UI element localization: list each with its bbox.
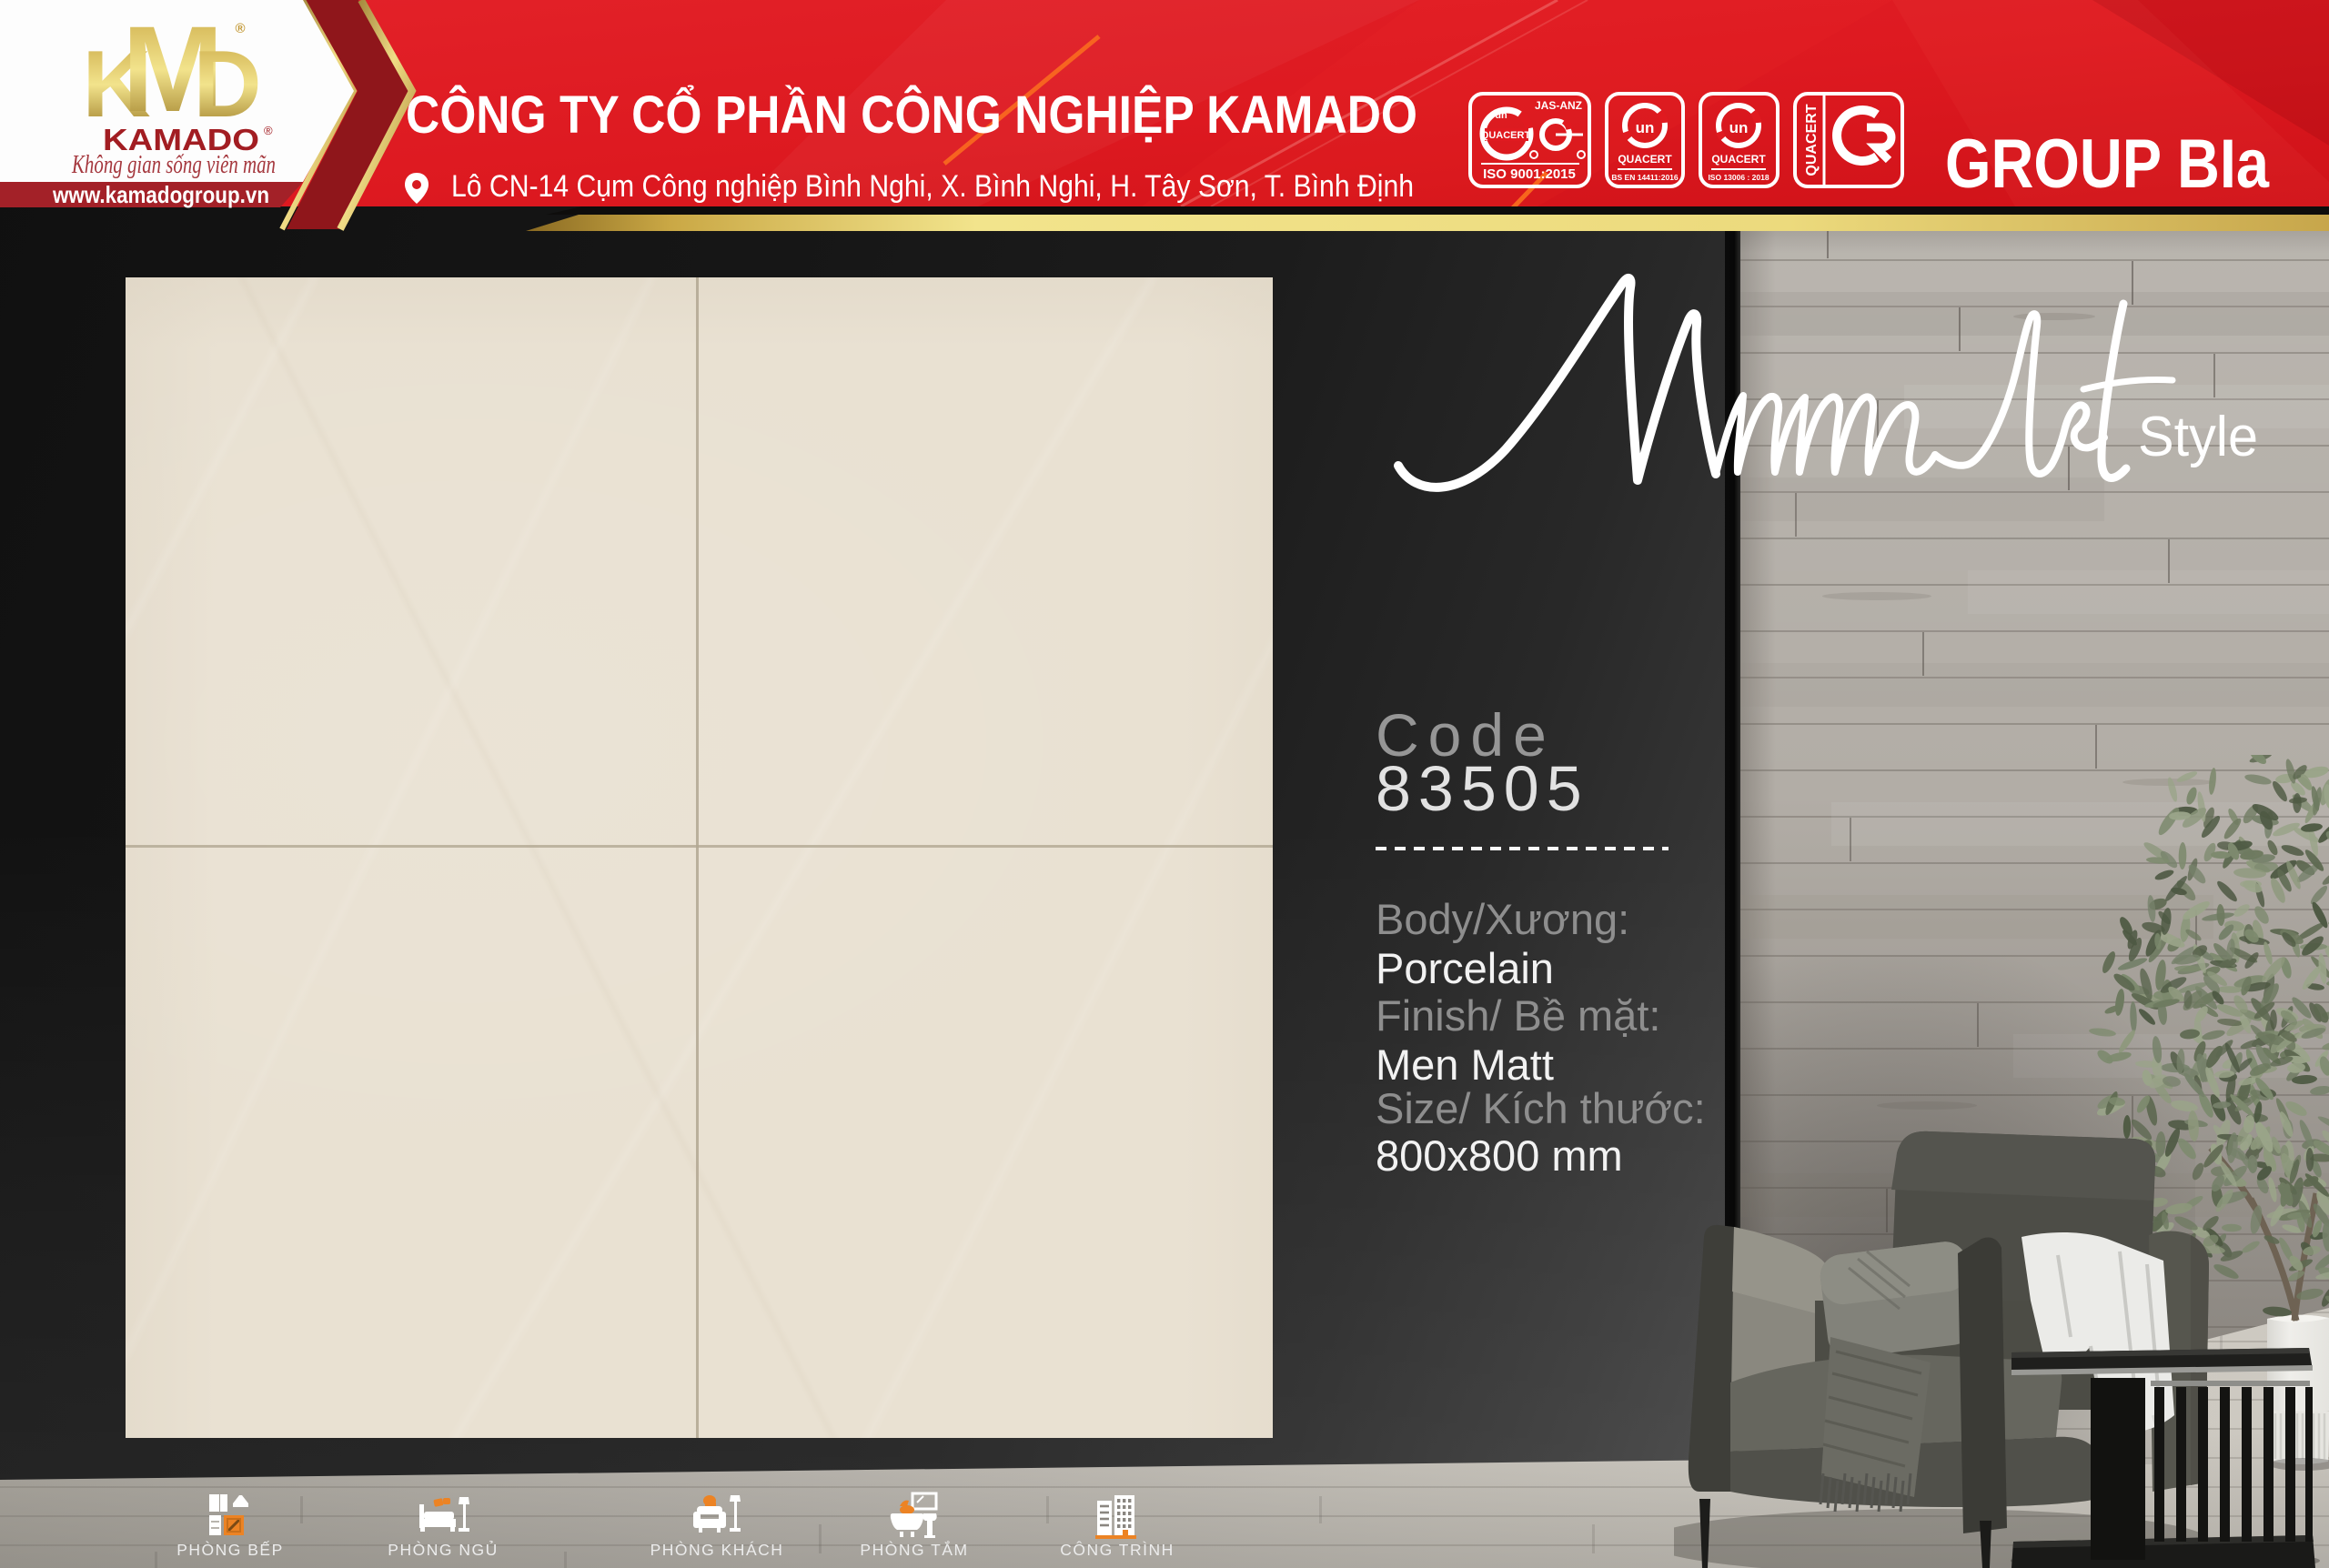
svg-text:Style: Style [2138,406,2258,468]
svg-text:QUACERT: QUACERT [1481,130,1531,141]
svg-text:Không gian sống viên mãn: Không gian sống viên mãn [71,151,276,179]
svg-text:ISO 13006 : 2018: ISO 13006 : 2018 [1708,173,1769,182]
svg-text:GROUP BIa: GROUP BIa [1945,126,2270,203]
svg-text:BS EN 14411:2016: BS EN 14411:2016 [1611,173,1679,182]
svg-text:D: D [193,32,261,137]
svg-text:QUACERT: QUACERT [1804,104,1820,176]
svg-text:www.kamadogroup.vn: www.kamadogroup.vn [52,181,269,208]
svg-text:Lô CN-14 Cụm Công nghiệp Bình: Lô CN-14 Cụm Công nghiệp Bình Nghi, X. B… [451,169,1414,204]
svg-text:ISO 9001:2015: ISO 9001:2015 [1483,166,1576,182]
svg-text:un: un [1495,110,1507,121]
svg-text:CÔNG TY CỔ PHẦN CÔNG NGHIỆP KA: CÔNG TY CỔ PHẦN CÔNG NGHIỆP KAMADO [406,85,1417,145]
svg-text:®: ® [235,21,245,36]
svg-text:®: ® [264,124,273,137]
svg-text:un: un [1729,119,1749,136]
svg-text:QUACERT: QUACERT [1618,153,1672,166]
svg-text:QUACERT: QUACERT [1711,153,1766,166]
svg-text:JAS-ANZ: JAS-ANZ [1535,99,1582,112]
svg-text:un: un [1636,119,1655,136]
